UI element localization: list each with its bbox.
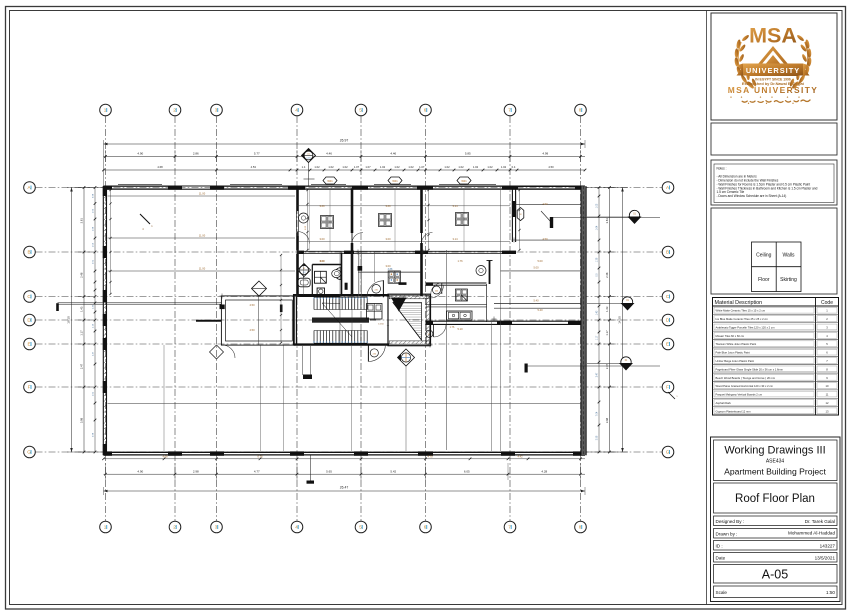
svg-text:12: 12	[826, 401, 829, 405]
svg-text:Beech Wood Boards ( Tounge and: Beech Wood Boards ( Tounge and Grove ) 2…	[716, 376, 776, 380]
svg-text:Code: Code	[821, 300, 833, 306]
svg-text:4.90: 4.90	[137, 152, 143, 156]
svg-text:1.76: 1.76	[457, 259, 463, 263]
svg-text:1.17: 1.17	[605, 330, 609, 336]
svg-text:6.05: 6.05	[464, 469, 470, 473]
svg-text:Date: Date	[716, 555, 726, 560]
svg-text:Ice Blue Matte Ceramic Tiles 2: Ice Blue Matte Ceramic Tiles 25 x 25 x 2…	[716, 317, 769, 321]
svg-text:3.00: 3.00	[385, 237, 391, 241]
svg-text:F: F	[28, 385, 31, 390]
svg-text:Mosaic Tiles 60 x 60 cm: Mosaic Tiles 60 x 60 cm	[716, 334, 745, 338]
svg-text:Titanium White Jotun Plastic P: Titanium White Jotun Plastic Paint	[716, 342, 757, 346]
svg-text:1.02: 1.02	[314, 165, 320, 169]
svg-text:W01: W01	[327, 179, 333, 183]
svg-text:4.28: 4.28	[541, 469, 547, 473]
svg-text:UNIVERSITY: UNIVERSITY	[746, 66, 800, 75]
svg-text:B: B	[27, 250, 30, 255]
svg-text:Designed By :: Designed By :	[716, 519, 745, 524]
svg-text:1.43: 1.43	[605, 306, 609, 312]
svg-text:5.65: 5.65	[326, 469, 332, 473]
svg-text:7.04: 7.04	[597, 411, 599, 416]
svg-text:Floor: Floor	[758, 277, 770, 283]
svg-text:4.70: 4.70	[427, 454, 433, 458]
svg-text:5.00: 5.00	[533, 266, 539, 270]
svg-text:Scale: Scale	[716, 590, 728, 595]
svg-text:+: +	[387, 324, 390, 329]
svg-text:5.00: 5.00	[537, 259, 543, 263]
svg-text:1.07: 1.07	[365, 165, 371, 169]
svg-text:11.00: 11.00	[199, 267, 206, 271]
svg-text:4.68: 4.68	[162, 454, 168, 458]
svg-text:Pale Blue Jotun Plastic Paint: Pale Blue Jotun Plastic Paint	[716, 351, 751, 355]
svg-text:3.00: 3.00	[385, 264, 391, 268]
svg-text:2.98: 2.98	[193, 469, 199, 473]
svg-text:4.90: 4.90	[137, 469, 143, 473]
svg-text:Material Description: Material Description	[715, 300, 763, 306]
svg-text:4.50: 4.50	[548, 165, 554, 169]
svg-text:- Doors and Window Schedule ar: - Doors and Window Schedule are in Sheet…	[717, 194, 787, 198]
svg-text:Parquet Mahgany Vertical Board: Parquet Mahgany Vertical Boards 2 cm	[716, 393, 763, 397]
svg-text:1.43: 1.43	[597, 310, 599, 315]
svg-text:16.10: 16.10	[67, 316, 71, 324]
svg-text:4.46: 4.46	[390, 152, 396, 156]
svg-text:4.99: 4.99	[542, 152, 548, 156]
svg-text:ASE434: ASE434	[766, 459, 785, 465]
svg-text:Drawn by :: Drawn by :	[716, 531, 738, 536]
svg-text:1.02: 1.02	[342, 165, 348, 169]
svg-text:Apartment Building Project: Apartment Building Project	[724, 467, 826, 477]
svg-text:3.98: 3.98	[80, 417, 84, 423]
svg-text:4.50: 4.50	[542, 202, 548, 206]
svg-text:4.46: 4.46	[326, 152, 332, 156]
svg-text:1.02: 1.02	[328, 165, 334, 169]
svg-text:2.47: 2.47	[597, 372, 599, 377]
svg-text:MSA UNIVERSITY: MSA UNIVERSITY	[728, 85, 818, 95]
svg-text:1.07: 1.07	[419, 165, 425, 169]
svg-text:3.61: 3.61	[80, 218, 84, 224]
svg-text:13: 13	[826, 409, 829, 413]
svg-text:13.60: 13.60	[378, 324, 384, 326]
svg-text:4.68: 4.68	[157, 165, 163, 169]
svg-text:2.48: 2.48	[605, 272, 609, 278]
svg-text:ID :: ID :	[716, 543, 723, 548]
svg-text:1.02: 1.02	[408, 165, 414, 169]
svg-text:1.05: 1.05	[597, 203, 599, 208]
svg-text:3.00: 3.00	[319, 237, 325, 241]
svg-text:Skirting: Skirting	[780, 277, 797, 283]
svg-text:E: E	[666, 342, 669, 347]
svg-text:1.38: 1.38	[597, 257, 599, 262]
svg-text:E: E	[27, 342, 30, 347]
svg-text:4.50: 4.50	[542, 237, 548, 241]
svg-text:5.40: 5.40	[537, 308, 543, 312]
svg-text:1.02: 1.02	[458, 165, 464, 169]
svg-text:26.47: 26.47	[340, 486, 349, 490]
svg-text:10: 10	[826, 384, 829, 388]
svg-text:1.02: 1.02	[380, 165, 386, 169]
svg-text:Ceiling: Ceiling	[756, 253, 772, 259]
svg-text:Asphalt Dark: Asphalt Dark	[716, 401, 732, 405]
svg-text:11.00: 11.00	[199, 234, 206, 238]
svg-text:1.76: 1.76	[450, 326, 455, 329]
svg-text:3.00: 3.00	[319, 204, 325, 208]
svg-text:Wood Paine Grained Horizontal: Wood Paine Grained Horizontal 120 x 30 x…	[716, 384, 774, 388]
svg-text:3.98: 3.98	[605, 417, 609, 423]
svg-text:W01: W01	[461, 179, 467, 183]
svg-text:11.00: 11.00	[199, 192, 206, 196]
svg-text:0.76: 0.76	[257, 454, 263, 458]
svg-text:B: B	[666, 250, 669, 255]
svg-text:Mohammed Al-Haddad: Mohammed Al-Haddad	[788, 530, 835, 535]
svg-text:1.17: 1.17	[80, 330, 84, 336]
svg-text:4.50: 4.50	[249, 328, 255, 332]
svg-text:1.43: 1.43	[80, 306, 84, 312]
svg-text:Roof Floor Plan: Roof Floor Plan	[735, 493, 815, 505]
svg-text:1.07: 1.07	[354, 165, 360, 169]
svg-text:5.10: 5.10	[457, 327, 463, 331]
svg-text:5.42: 5.42	[390, 469, 396, 473]
svg-text:Arablesato Tigger Porcelin Til: Arablesato Tigger Porcelin Tiles 120 x 1…	[716, 325, 776, 329]
svg-text:0.4: 0.4	[512, 165, 516, 169]
svg-text:4.53: 4.53	[251, 165, 257, 169]
svg-text:1:50: 1:50	[826, 590, 835, 595]
svg-text:5.85: 5.85	[465, 152, 471, 156]
svg-text:Gypsum Plasterboard 12 mm: Gypsum Plasterboard 12 mm	[716, 409, 752, 413]
svg-text:5.40: 5.40	[533, 299, 539, 303]
svg-text:1.02: 1.02	[394, 165, 400, 169]
svg-text:3.14: 3.14	[452, 204, 458, 208]
svg-text:1.02: 1.02	[487, 165, 493, 169]
svg-text:4.50: 4.50	[249, 303, 255, 307]
svg-text:Notes :: Notes :	[717, 167, 727, 171]
svg-text:13/5/2021: 13/5/2021	[815, 555, 836, 560]
svg-text:Dr. Tarek Galal: Dr. Tarek Galal	[805, 519, 835, 524]
svg-text:4.42: 4.42	[517, 454, 523, 458]
svg-text:Umber Beige Jotun Plastic Pain: Umber Beige Jotun Plastic Paint	[716, 359, 755, 363]
svg-text:3.98: 3.98	[597, 435, 599, 440]
svg-text:2.48: 2.48	[80, 272, 84, 278]
svg-text:1.02: 1.02	[473, 165, 479, 169]
svg-text:5.77: 5.77	[254, 152, 260, 156]
svg-text:MSA: MSA	[749, 24, 797, 48]
svg-text:A-05: A-05	[762, 568, 788, 582]
svg-text:1.02: 1.02	[444, 165, 450, 169]
svg-text:1.17: 1.17	[597, 335, 599, 340]
svg-text:2.47: 2.47	[80, 363, 84, 369]
svg-text:4.77: 4.77	[254, 469, 260, 473]
svg-text:2.86: 2.86	[193, 152, 199, 156]
svg-text:1.64: 1.64	[597, 225, 599, 230]
svg-text:3.00: 3.00	[385, 204, 391, 208]
svg-text:3.88: 3.88	[388, 268, 393, 271]
svg-text:143227: 143227	[820, 543, 836, 548]
svg-text:Walls: Walls	[782, 253, 795, 259]
svg-text:F: F	[666, 385, 669, 390]
svg-text:1.4: 1.4	[302, 165, 306, 169]
svg-text:26.97: 26.97	[340, 139, 349, 143]
svg-text:3.61: 3.61	[605, 218, 609, 224]
svg-text:11: 11	[826, 393, 829, 397]
svg-text:Pageboard Fiber Glass Single S: Pageboard Fiber Glass Single Slide 20 x …	[716, 367, 784, 371]
svg-text:White Matte Ceramic Tiles 15 x: White Matte Ceramic Tiles 15 x 15 x 2 cm	[716, 309, 766, 313]
svg-text:W01: W01	[392, 179, 398, 183]
svg-text:14.50: 14.50	[618, 316, 622, 324]
svg-text:3.14: 3.14	[452, 237, 458, 241]
svg-text:1.02: 1.02	[501, 165, 507, 169]
svg-text:Working Drawings III: Working Drawings III	[724, 445, 825, 457]
svg-text:3.00: 3.00	[319, 259, 325, 263]
